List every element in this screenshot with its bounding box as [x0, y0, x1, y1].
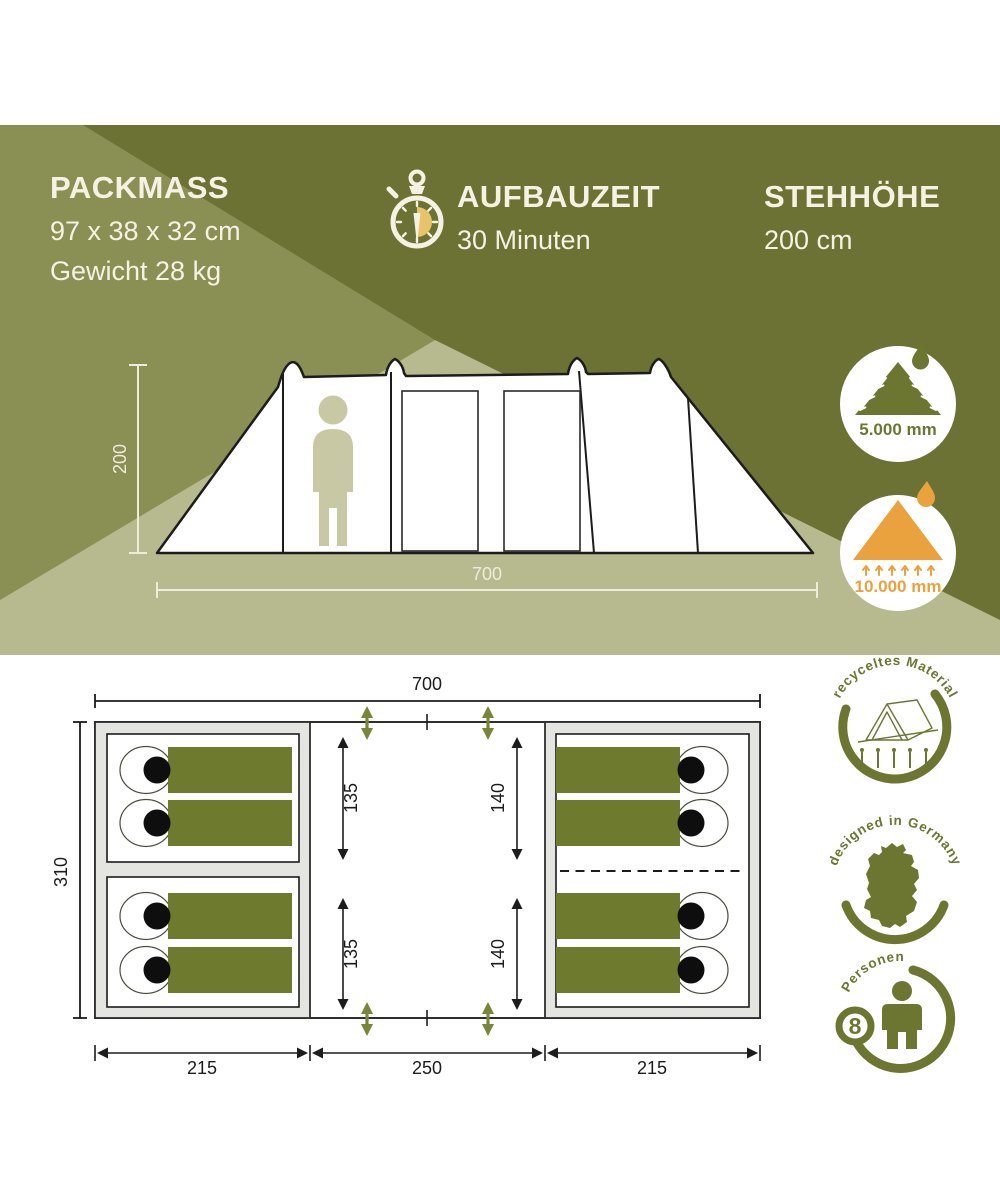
floor-plan: 700 310 [51, 674, 760, 1078]
sleeping-bag [120, 947, 292, 994]
plan-depth-label: 310 [51, 857, 71, 887]
germany-map-icon [864, 843, 919, 928]
flysheet-water-value: 5.000 mm [859, 420, 937, 439]
tent-sketch-icon [858, 700, 938, 742]
tent-door-left [402, 391, 478, 551]
aufbau-title: AUFBAUZEIT [457, 179, 660, 214]
packmass-title: PACKMASS [50, 170, 229, 205]
person-icon [882, 981, 922, 1049]
infographic-canvas: PACKMASS 97 x 38 x 32 cm Gewicht 28 kg A… [0, 0, 1000, 1200]
steh-value: 200 cm [764, 225, 853, 255]
stamp-designed-in-germany: designed in Germany [825, 813, 964, 940]
sleeping-bag [120, 800, 292, 847]
groundsheet-water-value: 10.000 mm [855, 577, 942, 596]
stamp-recycled-material: recyceltes Material [829, 653, 961, 779]
tent-pegs-icon [860, 748, 928, 768]
section-dimensions: 215 250 215 [95, 1045, 760, 1078]
packmass-weight: Gewicht 28 kg [50, 256, 221, 286]
plan-width-dimension [95, 694, 760, 708]
inner-dim-label: 135 [341, 939, 361, 969]
sleeping-bag [120, 893, 292, 940]
sleeping-bag [556, 947, 728, 994]
width-label: 700 [472, 564, 502, 584]
svg-text:recyceltes Material: recyceltes Material [829, 653, 961, 700]
section-width-label: 215 [187, 1058, 217, 1078]
section-width-label: 250 [412, 1058, 442, 1078]
tent-infographic: PACKMASS 97 x 38 x 32 cm Gewicht 28 kg A… [0, 0, 1000, 1200]
tent-door-right [504, 391, 580, 551]
aufbau-value: 30 Minuten [457, 225, 591, 255]
inner-dim-label: 135 [341, 783, 361, 813]
section-width-label: 215 [637, 1058, 667, 1078]
sleeping-bag [120, 747, 292, 794]
sleeping-bag [556, 800, 728, 847]
steh-title: STEHHÖHE [764, 179, 940, 214]
sleeping-bag [556, 893, 728, 940]
sleeping-bag [556, 747, 728, 794]
plan-width-label: 700 [412, 674, 442, 694]
inner-dim-label: 140 [488, 939, 508, 969]
persons-count: 8 [849, 1013, 862, 1039]
height-label: 200 [110, 444, 130, 474]
recycled-label: recyceltes Material [829, 653, 961, 700]
stamp-persons: Personen 8 [838, 949, 950, 1068]
packmass-dims: 97 x 38 x 32 cm [50, 216, 241, 246]
inner-dim-label: 140 [488, 783, 508, 813]
plan-depth-dimension [73, 722, 87, 1018]
